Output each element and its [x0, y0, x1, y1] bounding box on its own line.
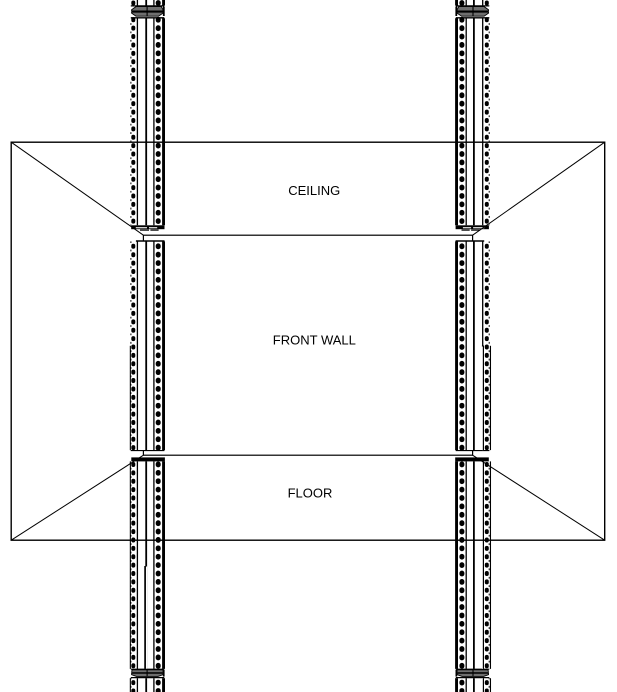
svg-text:FLOOR: FLOOR	[288, 485, 333, 500]
svg-text:FRONT WALL: FRONT WALL	[273, 333, 356, 348]
svg-text:CEILING: CEILING	[288, 183, 340, 198]
